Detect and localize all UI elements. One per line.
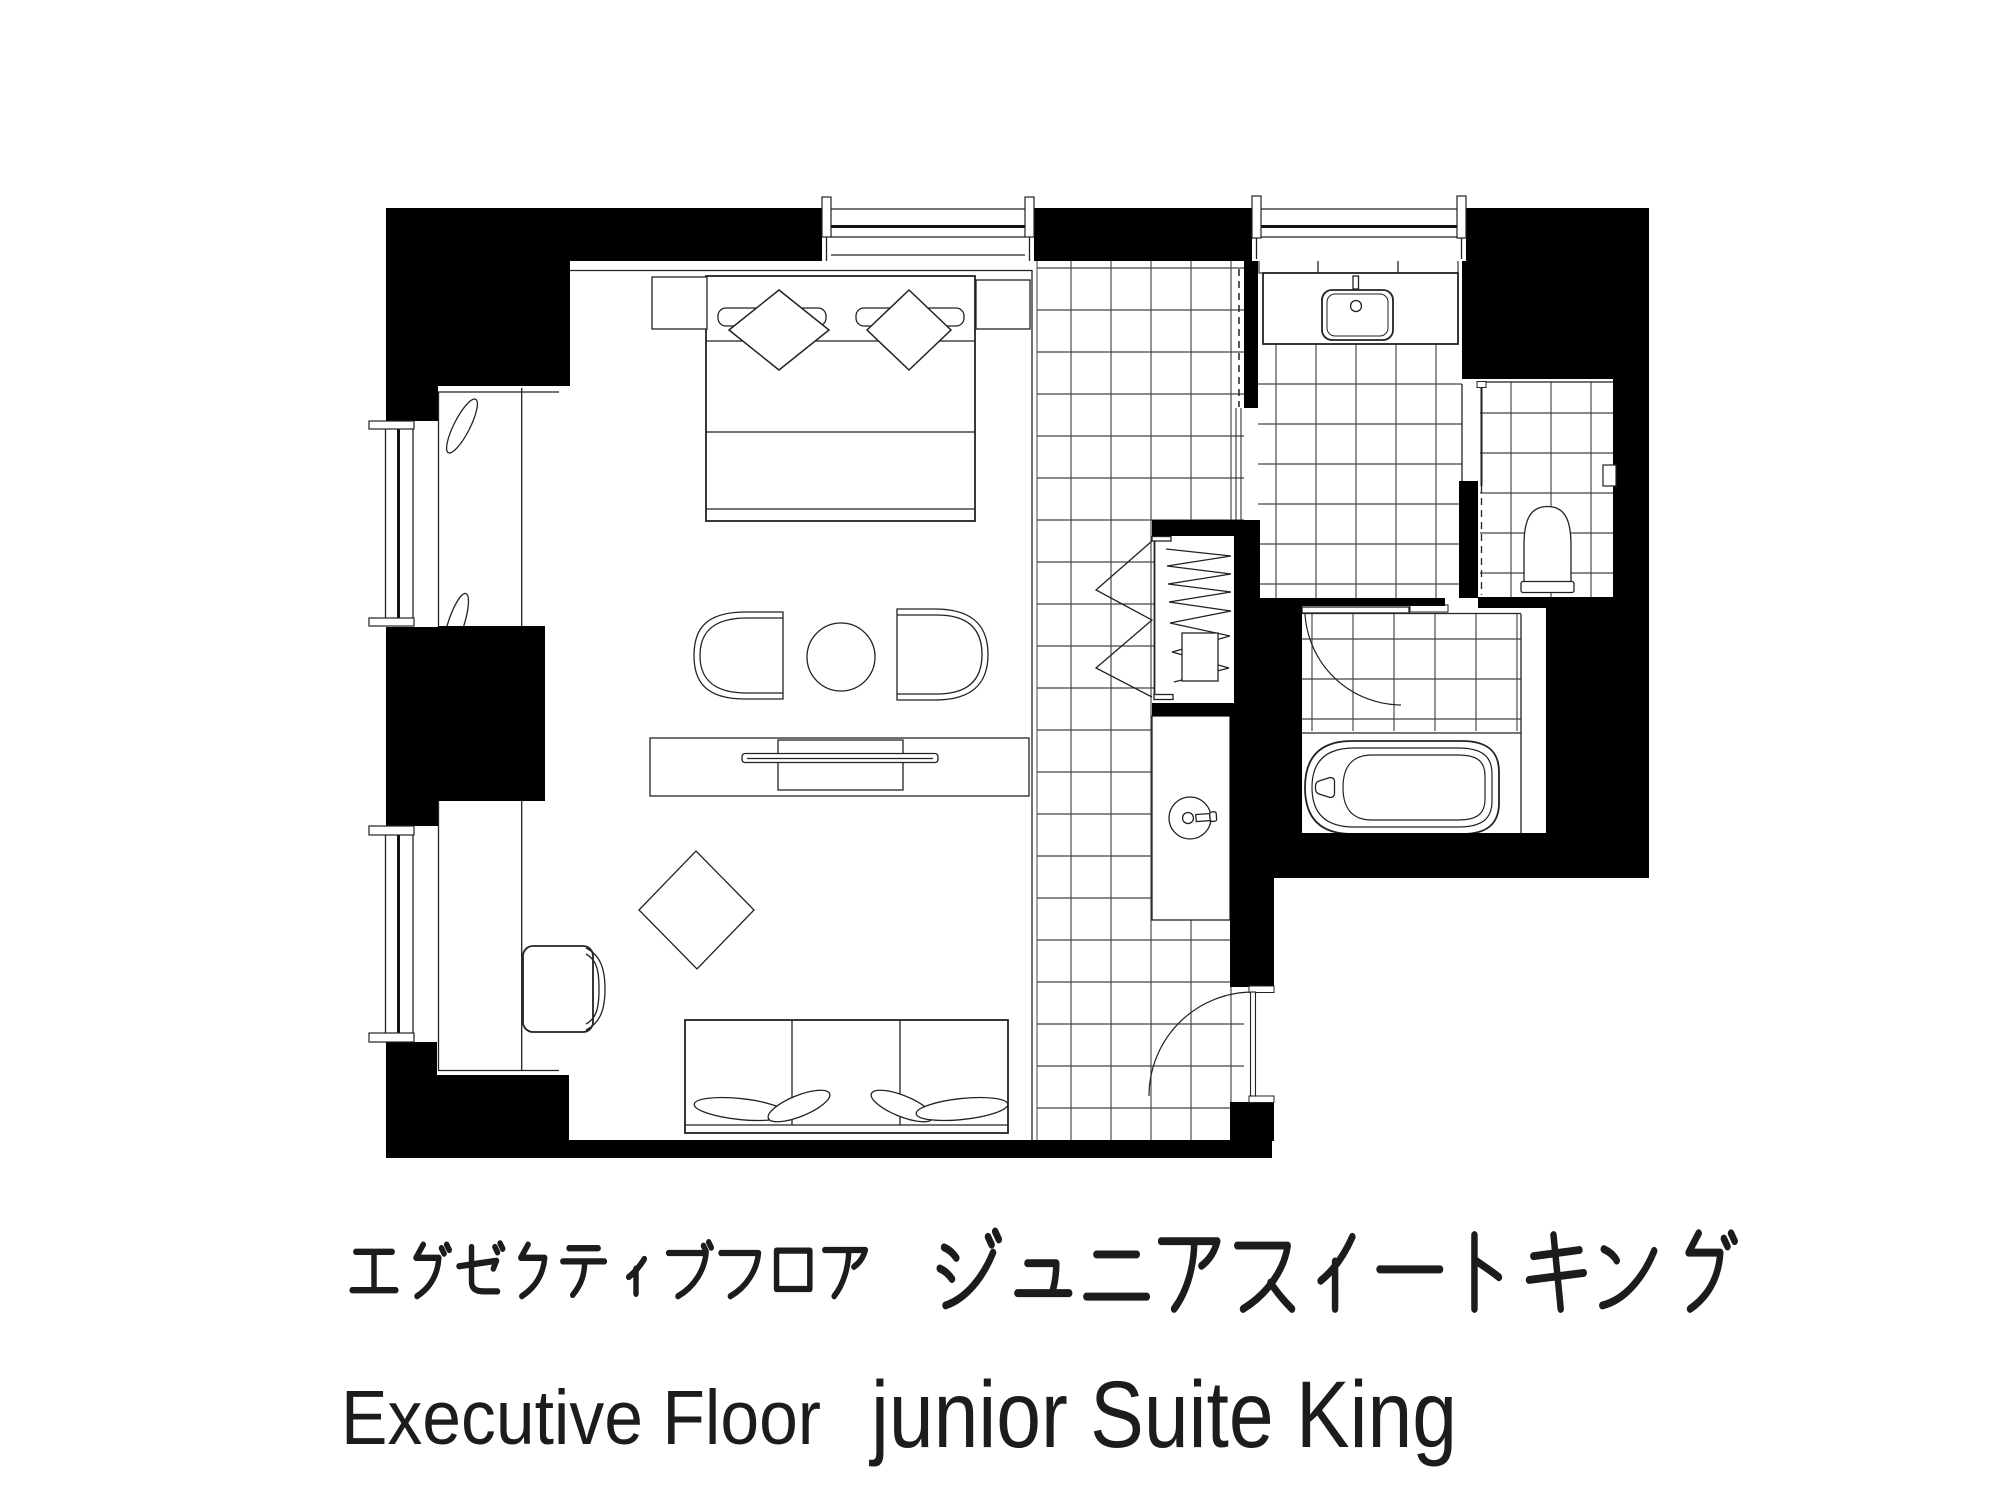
svg-text:junior Suite King: junior Suite King	[868, 1362, 1457, 1468]
svg-text:Executive Floor: Executive Floor	[341, 1375, 821, 1461]
